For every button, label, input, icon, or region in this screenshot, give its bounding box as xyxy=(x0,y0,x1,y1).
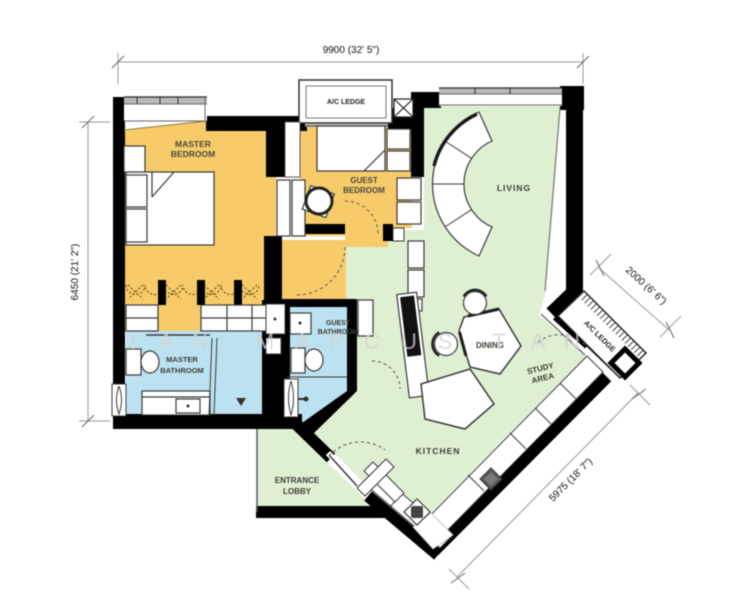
svg-text:A: A xyxy=(295,329,310,354)
svg-text:LOBBY: LOBBY xyxy=(283,487,312,496)
svg-text:N: N xyxy=(192,329,208,354)
svg-text:KITCHEN: KITCHEN xyxy=(416,446,461,456)
svg-text:6450 (21' 2"): 6450 (21' 2") xyxy=(70,244,81,301)
svg-text:A: A xyxy=(531,329,546,354)
svg-text:U: U xyxy=(401,329,417,354)
svg-text:S: S xyxy=(438,329,453,354)
svg-text:MASTER: MASTER xyxy=(166,355,198,364)
svg-text:R: R xyxy=(329,329,345,354)
svg-text:I: I xyxy=(130,329,136,354)
svg-text:ENTRANCE: ENTRANCE xyxy=(275,476,320,485)
svg-text:5975 (18' 7"): 5975 (18' 7") xyxy=(547,456,595,504)
svg-text:MASTER: MASTER xyxy=(175,139,211,149)
svg-text:GUEST: GUEST xyxy=(326,320,351,327)
svg-text:T: T xyxy=(492,329,505,354)
svg-text:C: C xyxy=(364,329,380,354)
svg-text:GUEST: GUEST xyxy=(350,176,378,185)
svg-text:BEDROOM: BEDROOM xyxy=(171,149,215,159)
svg-text:A/C LEDGE: A/C LEDGE xyxy=(327,99,365,106)
svg-text:BATHROOM: BATHROOM xyxy=(160,366,204,375)
svg-text:M: M xyxy=(256,329,274,354)
svg-text:A: A xyxy=(159,329,174,354)
svg-text:2000 (6' 6"): 2000 (6' 6") xyxy=(623,265,668,307)
svg-text:BEDROOM: BEDROOM xyxy=(343,186,385,195)
svg-text:9900 (32' 5"): 9900 (32' 5") xyxy=(323,45,380,56)
svg-text:LIVING: LIVING xyxy=(497,183,531,193)
svg-text:N: N xyxy=(564,329,580,354)
